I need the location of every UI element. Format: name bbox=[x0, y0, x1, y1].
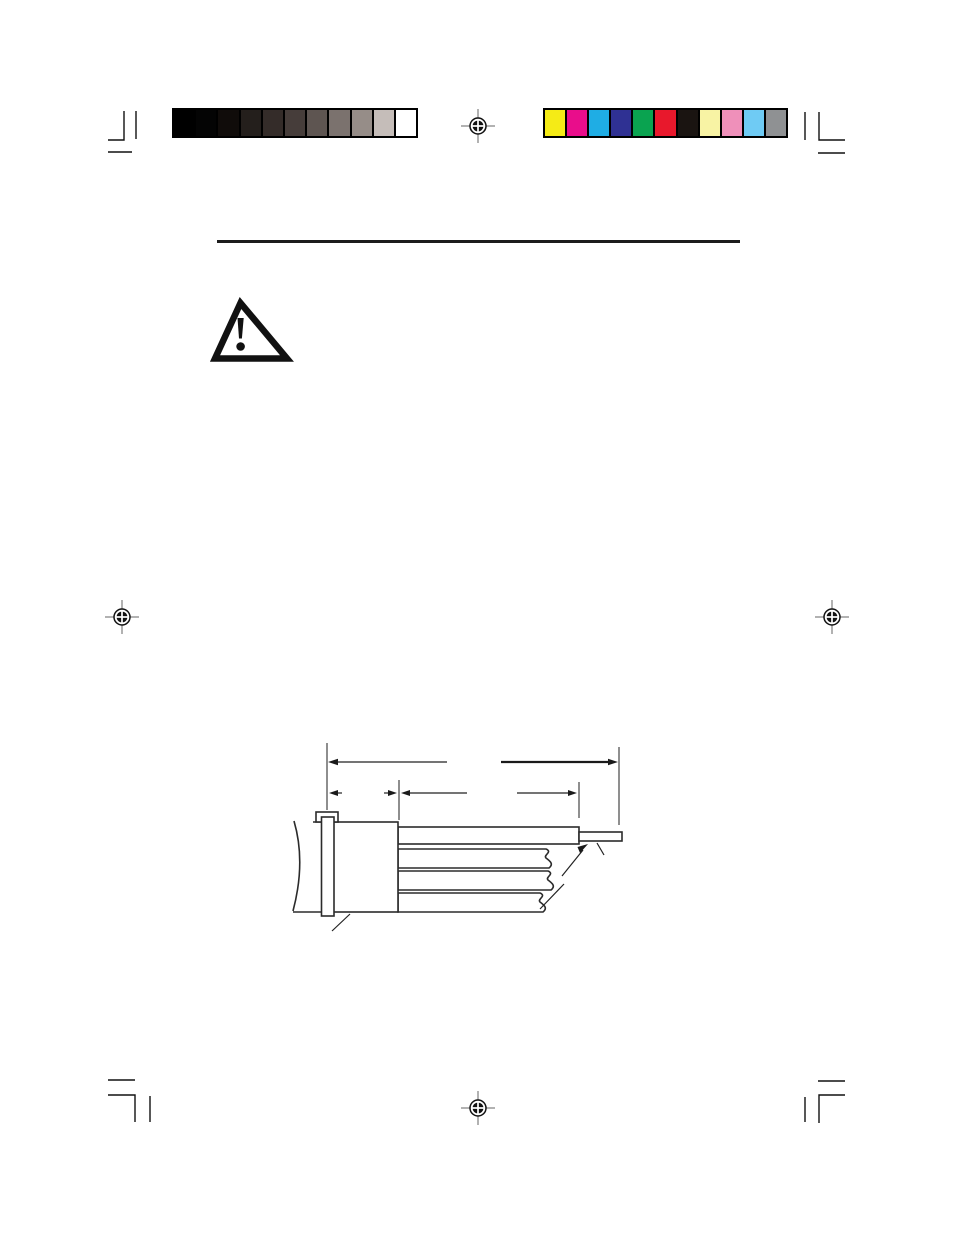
crop-marks-bottom-right bbox=[805, 1081, 845, 1123]
registration-mark-icon bbox=[461, 1091, 495, 1125]
connector-body-drawing bbox=[293, 812, 622, 931]
registration-mark-icon bbox=[105, 600, 139, 634]
cable-4 bbox=[398, 893, 545, 912]
cable-1 bbox=[398, 827, 579, 844]
warning-triangle-icon bbox=[215, 303, 287, 359]
diagram-extension-lines bbox=[327, 743, 619, 825]
registration-mark-icon bbox=[461, 109, 495, 143]
pin-tip bbox=[579, 832, 622, 841]
mounting-screw bbox=[322, 817, 335, 916]
dimension-flange bbox=[329, 790, 397, 796]
page-lineart bbox=[0, 0, 954, 1235]
cable-2 bbox=[398, 849, 551, 868]
panel-break-line bbox=[293, 821, 300, 911]
connector-diagram bbox=[293, 743, 622, 931]
dimension-top bbox=[328, 759, 618, 765]
cable-3 bbox=[398, 871, 553, 890]
crop-marks-top-left bbox=[108, 111, 136, 152]
crop-marks-bottom-left bbox=[108, 1080, 150, 1122]
registration-mark-icon bbox=[815, 600, 849, 634]
dimension-body-to-cable-end bbox=[401, 790, 577, 796]
scanned-proof-page bbox=[0, 0, 954, 1235]
crop-marks-top-right bbox=[805, 112, 845, 153]
connector-housing bbox=[333, 822, 398, 912]
